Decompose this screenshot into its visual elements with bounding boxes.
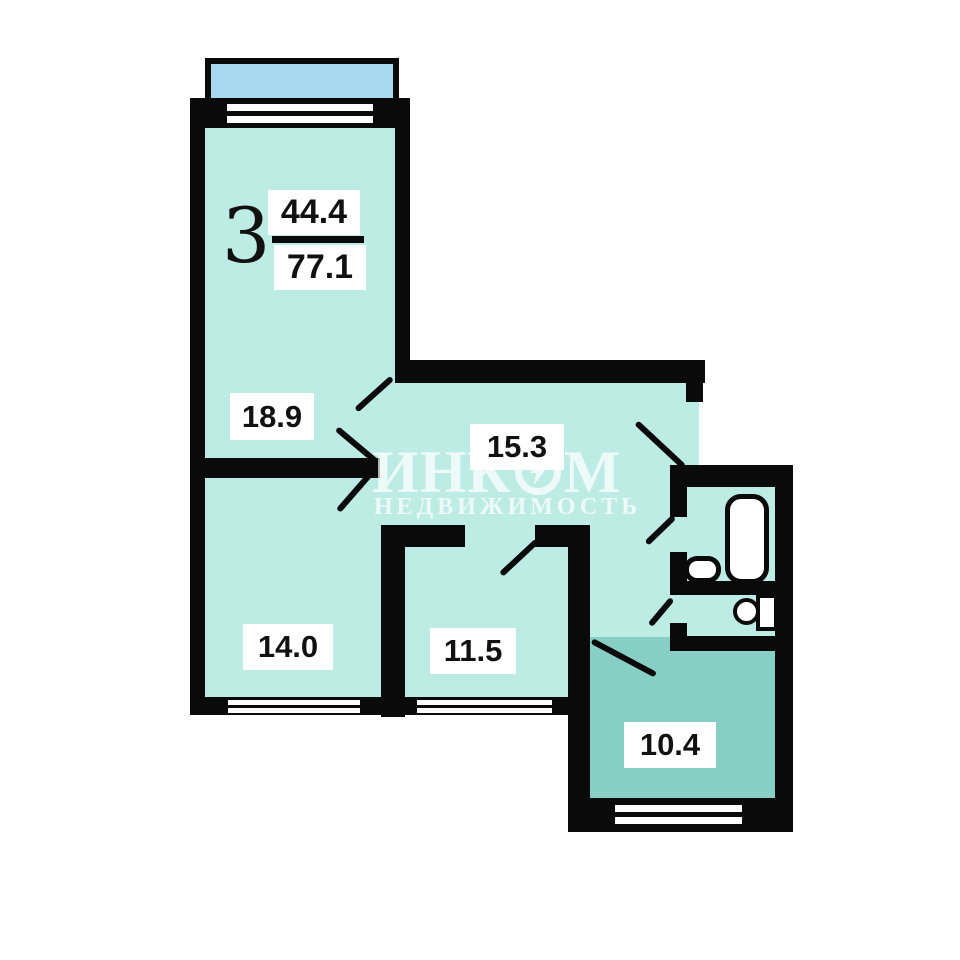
room-area-label-18-9: 18.9 [230,393,314,440]
window [417,708,552,713]
fraction-line [272,236,364,243]
wall [381,525,465,547]
wall [670,487,687,517]
area-living-label: 44.4 [268,190,360,235]
wall [204,458,380,478]
sink-icon [684,556,721,583]
wall [686,383,703,402]
wall [395,98,410,383]
wall [395,360,705,383]
window [228,708,360,713]
wall [670,581,778,595]
room-area-label-15-3: 15.3 [470,424,564,470]
wall [568,798,793,832]
wall [670,636,778,651]
wall [190,98,410,128]
window [228,700,360,705]
area-total-label: 77.1 [274,245,366,290]
wall [568,525,590,832]
entrance-opening-floor [687,400,699,465]
bathtub-icon [725,494,769,584]
wall [190,100,205,715]
window [227,116,373,123]
watermark-brand-end: М [564,442,622,502]
window [615,805,742,812]
room-area-label-11-5: 11.5 [430,628,516,674]
watermark-subtitle: НЕДВИЖИМОСТЬ [374,494,641,521]
floor-plan: ИНК М НЕДВИЖИМОСТЬ 3 44.4 77.1 18.9 15.3… [0,0,960,960]
room-area-label-10-4: 10.4 [624,722,716,768]
window [615,817,742,824]
room-area-label-14-0: 14.0 [243,624,333,670]
window [227,104,373,111]
kitchen-floor [586,637,778,805]
unit-number: 3 [222,198,270,274]
wall [381,525,405,717]
window [417,700,552,705]
